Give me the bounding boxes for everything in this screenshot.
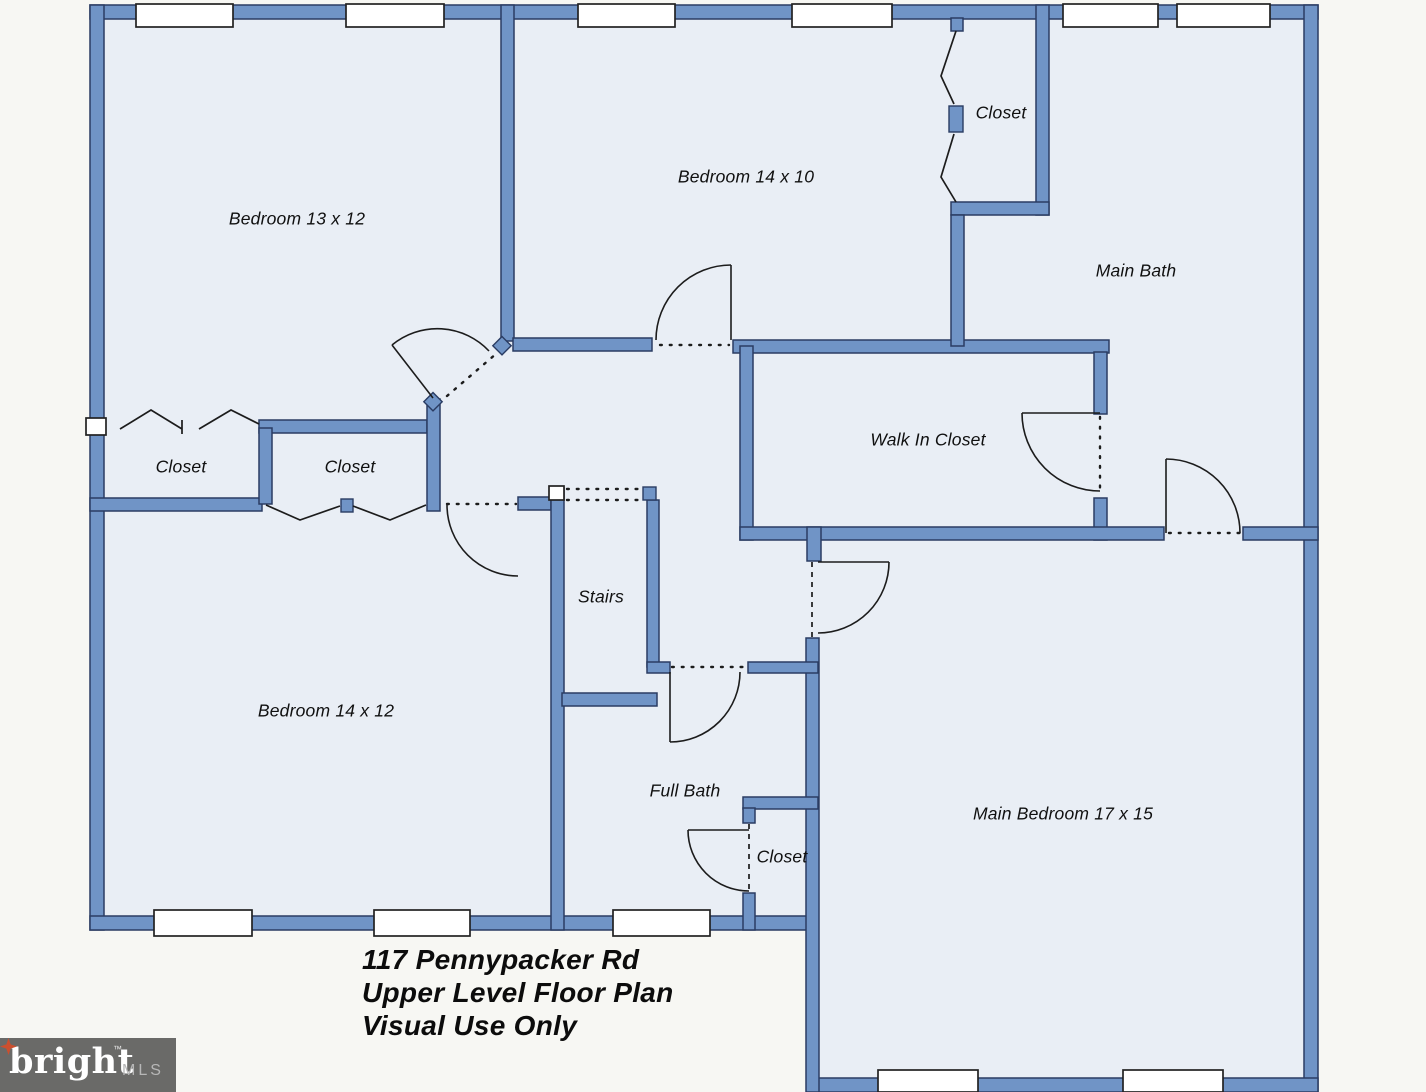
wall-fullbath-top [748, 662, 818, 673]
room-label-bedroom-14x12: Bedroom 14 x 12 [258, 701, 394, 722]
wall-hall-stub [518, 497, 551, 510]
room-label-main-bath: Main Bath [1096, 261, 1177, 282]
wall-mainbath-left [951, 215, 964, 346]
wall-closet-bottom [90, 498, 262, 511]
wall-walkin-bottom-right [1243, 527, 1318, 540]
window-top-6 [1177, 4, 1270, 27]
room-label-closet-bottom: Closet [757, 847, 808, 868]
wall-left [90, 5, 104, 930]
room-label-stairs: Stairs [578, 587, 624, 608]
wall-closet-right [427, 399, 440, 511]
floor-plan-page: Bedroom 13 x 12 Bedroom 14 x 10 Closet M… [0, 0, 1426, 1092]
wall-closet-mid [259, 428, 272, 504]
room-label-main-bedroom: Main Bedroom 17 x 15 [973, 804, 1153, 825]
logo-star-icon [0, 1038, 17, 1055]
wall-closetb-stub-bot [743, 893, 755, 930]
window-top-1 [136, 4, 233, 27]
window-bottom-3 [613, 910, 710, 936]
floorplan-drawing [0, 0, 1426, 1092]
room-label-closet-left-2: Closet [325, 457, 376, 478]
jamb-closet-tr [949, 106, 963, 132]
room-label-closet-top-right: Closet [976, 103, 1027, 124]
wall-closet-tr-bottom [951, 202, 1049, 215]
wall-closet-top [259, 420, 427, 433]
wall-closet-tr-stub [951, 18, 963, 31]
jamb-closet-left [341, 499, 353, 512]
wall-bed14x10-bottom-left [513, 338, 652, 351]
wall-right [1304, 5, 1318, 1092]
title-level: Upper Level Floor Plan [362, 976, 674, 1009]
window-top-5 [1063, 4, 1158, 27]
wall-closetb-stub-mid [743, 808, 755, 823]
wall-mainbr-stub [807, 527, 821, 561]
window-top-4 [792, 4, 892, 27]
room-label-walk-in-closet: Walk In Closet [870, 430, 985, 451]
jamb-stairs-top-left [549, 486, 564, 500]
wall-walkin-left [740, 346, 753, 540]
logo-trademark: ™ [113, 1044, 122, 1054]
window-top-2 [346, 4, 444, 27]
title-block: 117 Pennypacker Rd Upper Level Floor Pla… [362, 943, 674, 1042]
wall-bedroom-divider [501, 5, 514, 341]
wall-closet-tr-right [1036, 5, 1049, 215]
logo-suffix-text: MLS [122, 1062, 164, 1080]
room-label-closet-left-1: Closet [156, 457, 207, 478]
window-bottom-1 [154, 910, 252, 936]
room-label-bedroom-13x12: Bedroom 13 x 12 [229, 209, 365, 230]
room-label-full-bath: Full Bath [650, 781, 721, 802]
wall-walkin-bottom [740, 527, 1164, 540]
title-address: 117 Pennypacker Rd [362, 943, 674, 976]
wall-hall-stub-right [647, 662, 670, 673]
wall-walkin-right-upper [1094, 352, 1107, 414]
window-left-wall [86, 418, 106, 435]
wall-stairs-right [647, 500, 659, 667]
wall-stairs-bottom [562, 693, 657, 706]
room-label-bedroom-14x10: Bedroom 14 x 10 [678, 167, 814, 188]
wall-stairs-left [551, 488, 564, 930]
wall-closetb-top [743, 797, 818, 809]
window-mainbr-2 [1123, 1070, 1223, 1092]
window-mainbr-1 [878, 1070, 978, 1092]
wall-bed14x10-bottom-right [733, 340, 1109, 353]
title-disclaimer: Visual Use Only [362, 1009, 674, 1042]
window-top-3 [578, 4, 675, 27]
bright-mls-logo: bright ™ MLS [0, 1038, 176, 1092]
window-bottom-2 [374, 910, 470, 936]
wall-mainbr-left [806, 638, 819, 1092]
jamb-stairs [643, 487, 656, 500]
